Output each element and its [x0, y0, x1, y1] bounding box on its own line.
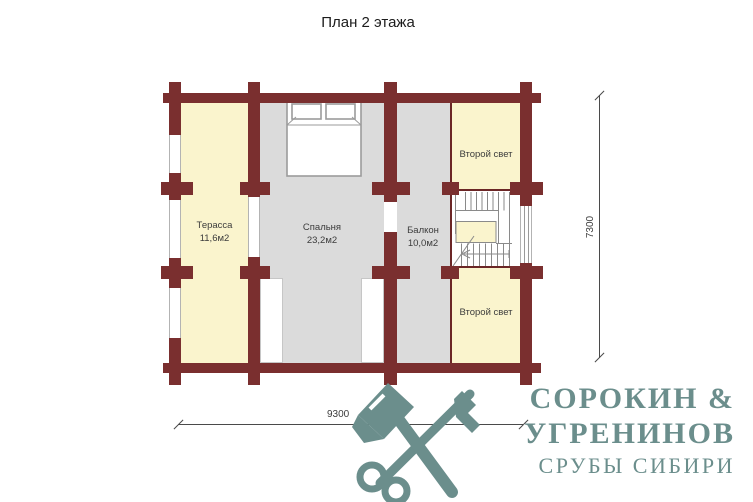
room-area: 10,0м2 — [408, 238, 438, 249]
log-end-crossing — [240, 266, 270, 279]
log-end-crossing — [240, 182, 270, 195]
logo-tagline: СРУБЫ СИБИРИ — [524, 451, 735, 481]
log-end-crossing — [442, 182, 459, 195]
wall-right-segment — [520, 263, 532, 385]
dimension-label-vertical: 7300 — [585, 207, 597, 247]
floor-plan-page: План 2 этажа — [0, 0, 753, 502]
log-end-crossing — [372, 266, 410, 279]
log-end-crossing — [510, 182, 543, 195]
wall-terrace-segment — [248, 82, 260, 197]
roof-slope-niche-left — [260, 278, 283, 363]
wall-left-segment — [169, 338, 181, 385]
logo-name-line1: СОРОКИН & — [524, 381, 735, 416]
room-name: Спальня — [303, 222, 341, 233]
wall-bottom — [163, 363, 541, 373]
label-balcony: Балкон 10,0м2 — [393, 224, 453, 250]
logo-name-line2: УГРЕНИНОВ — [524, 416, 735, 451]
window-left-2 — [169, 200, 181, 258]
log-end-crossing — [510, 266, 543, 279]
room-area: 11,6м2 — [200, 233, 230, 244]
room-area: 23,2м2 — [307, 235, 337, 246]
log-end-crossing — [372, 182, 410, 195]
window-glazing-line — [524, 206, 525, 263]
bed — [285, 99, 363, 178]
wall-top — [163, 93, 541, 103]
roof-slope-niche-right — [361, 278, 384, 363]
window-left-1 — [169, 135, 181, 173]
wall-balcony-segment — [384, 232, 397, 385]
log-end-crossing — [441, 266, 459, 279]
room-second-light-top — [452, 103, 520, 190]
dimension-line-vertical — [599, 95, 600, 358]
window-left-3 — [169, 288, 181, 338]
logo-axe-key-icon — [350, 377, 502, 502]
dimension-label-horizontal: 9300 — [327, 409, 349, 420]
page-title: План 2 этажа — [268, 14, 468, 31]
wall-left-segment — [169, 82, 181, 135]
label-bedroom: Спальня 23,2м2 — [282, 221, 362, 247]
window-right-stairs — [520, 206, 532, 263]
log-end-crossing — [161, 266, 193, 279]
window-terrace — [248, 197, 260, 257]
room-name: Балкон — [407, 225, 439, 236]
logo-text: СОРОКИН & УГРЕНИНОВ СРУБЫ СИБИРИ — [524, 381, 735, 481]
label-second-light-top: Второй свет — [452, 148, 520, 161]
label-second-light-bottom: Второй свет — [452, 306, 520, 319]
window-glazing-line — [528, 206, 529, 263]
log-end-crossing — [161, 182, 193, 195]
label-terrace: Терасса 11,6м2 — [182, 219, 247, 245]
room-name: Терасса — [197, 220, 233, 231]
staircase — [452, 190, 520, 268]
